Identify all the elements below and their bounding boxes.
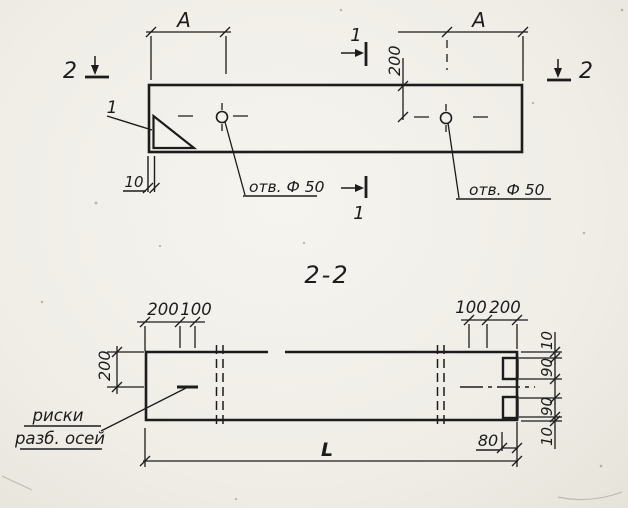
section-hidden-hole-lines-right: [438, 345, 445, 426]
dim-label: 200: [385, 45, 404, 76]
dim-label: 90: [538, 358, 556, 377]
speck: [159, 245, 161, 247]
dim-label: L: [321, 439, 333, 461]
drawing-svg: A A 200 10 отв. Ф 50: [0, 0, 628, 508]
section-mark-2-right: 2: [547, 59, 593, 84]
dim-label: 200: [147, 300, 179, 319]
section-dim-200-left: 200: [95, 346, 144, 394]
dim-label: 10: [538, 427, 556, 446]
plan-beam-outline: [149, 85, 522, 152]
section-number: 1: [353, 203, 364, 224]
dim-lines: [137, 322, 205, 351]
scan-smudge: [2, 476, 32, 490]
section-dim-top-left: 200 100: [137, 300, 212, 351]
detail-callout-1: 1: [107, 98, 152, 130]
dim-label: 200: [95, 350, 114, 381]
section-arrowhead: [355, 49, 364, 57]
hole-centerlines: [178, 103, 248, 131]
plan-dim-a-right: A: [398, 8, 528, 81]
section-notch-top: [503, 358, 518, 379]
plan-view: A A 200 10 отв. Ф 50: [63, 8, 593, 224]
section-dim-chain-right: 10 90 90 10: [519, 331, 562, 449]
hole-circle: [441, 113, 452, 124]
plan-dim-10: 10: [123, 156, 160, 193]
plan-dim-a-left: A: [146, 8, 231, 80]
dim-label: A: [175, 8, 191, 32]
speck: [95, 202, 98, 205]
section-mark-1-bottom: 1: [341, 176, 366, 224]
section-title: 2-2: [304, 261, 349, 289]
speck: [303, 242, 305, 244]
plan-corner-triangle: [154, 116, 195, 148]
hole-label: отв. Ф 50: [249, 178, 325, 196]
section-notch-bottom: [503, 397, 518, 418]
speck: [583, 232, 585, 234]
dim-lines: [461, 320, 528, 349]
section-dim-80: 80: [476, 422, 522, 467]
section-dim-length: L: [140, 428, 522, 467]
dim-label: 10: [538, 331, 556, 350]
plan-hole-right: [414, 104, 488, 132]
plan-hole-left: [178, 103, 248, 131]
section-dim-top-right: 100 200: [455, 298, 528, 349]
section-arrowhead: [554, 68, 562, 78]
dim-label: 80: [478, 431, 498, 450]
note-line-1: риски: [32, 406, 84, 425]
note-line-2: разб. осей: [14, 429, 105, 448]
section-number: 1: [350, 25, 361, 46]
drawing-sheet: A A 200 10 отв. Ф 50: [0, 0, 628, 508]
section-mark-1-top: 1: [341, 25, 366, 66]
leader-line: [101, 388, 186, 431]
section-view: 2-2 200 100 100 200: [14, 261, 562, 467]
dim-label: 90: [538, 397, 556, 416]
plan-hole-left-callout: отв. Ф 50: [225, 122, 325, 196]
detail-number: 1: [107, 98, 118, 118]
dim-label: 200: [489, 298, 521, 317]
dim-lines: [398, 32, 528, 81]
speck: [532, 102, 534, 104]
speck: [41, 301, 43, 303]
leader-line: [448, 123, 459, 198]
dim-lines: [502, 422, 518, 467]
dim-lines: [146, 32, 231, 80]
plan-hole-right-callout: отв. Ф 50: [448, 123, 551, 199]
axes-note: риски разб. осей: [14, 388, 186, 449]
section-number: 2: [63, 59, 77, 84]
dim-label: A: [470, 8, 486, 32]
section-beam-outline: [146, 352, 517, 420]
section-hidden-hole-lines-left: [217, 345, 224, 426]
scan-smudge: [558, 492, 622, 500]
dim-label: 100: [455, 298, 487, 317]
speck: [340, 9, 342, 11]
dim-label: 100: [180, 300, 212, 319]
dim-label: 10: [124, 173, 143, 191]
section-arrowhead: [355, 184, 364, 192]
leader-line: [107, 116, 152, 130]
speck: [600, 465, 603, 468]
section-arrowhead: [91, 65, 99, 75]
section-number: 2: [579, 59, 593, 84]
hole-circle: [217, 112, 228, 123]
speck: [235, 498, 237, 500]
speck: [621, 9, 624, 12]
section-mark-2-left: 2: [63, 56, 109, 84]
leader-line: [225, 122, 245, 195]
hole-label: отв. Ф 50: [469, 181, 545, 199]
